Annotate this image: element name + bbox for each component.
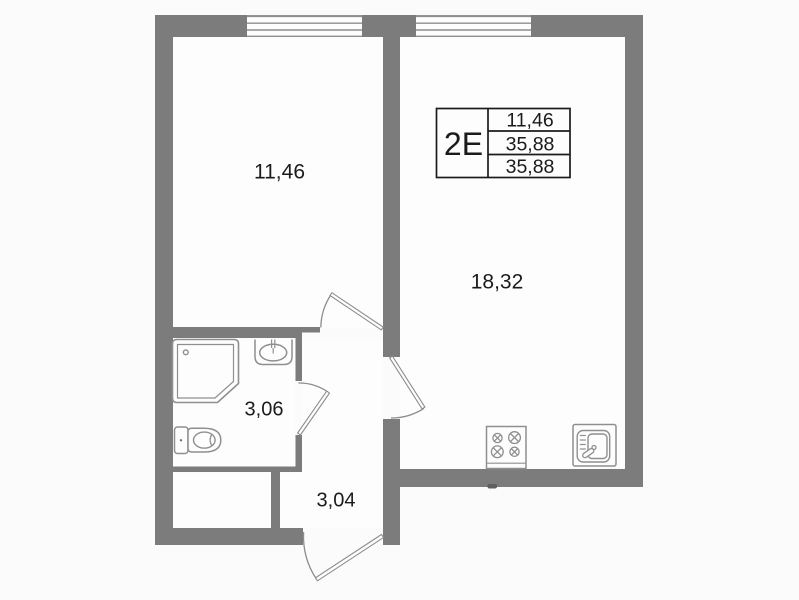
svg-text:3,06: 3,06 (245, 398, 284, 420)
svg-text:11,46: 11,46 (254, 161, 305, 184)
svg-text:18,32: 18,32 (471, 271, 524, 294)
svg-text:3,04: 3,04 (317, 490, 356, 512)
svg-text:35,88: 35,88 (506, 133, 555, 155)
svg-text:11,46: 11,46 (506, 109, 553, 131)
svg-text:35,88: 35,88 (506, 156, 555, 178)
svg-text:2Е: 2Е (444, 126, 483, 162)
